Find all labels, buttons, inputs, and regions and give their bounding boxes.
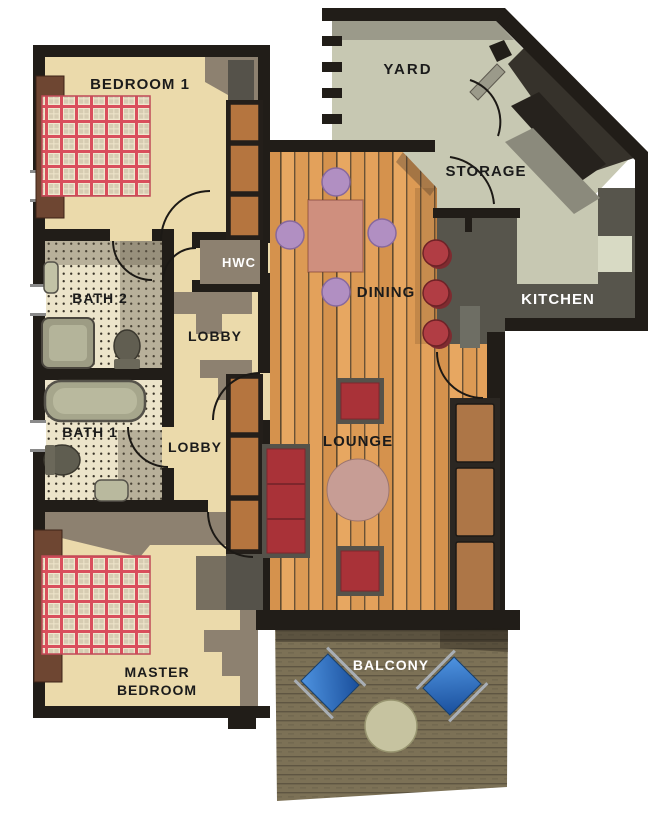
- lounge-armchair-bottom: [336, 546, 384, 596]
- label-lobby-lower: LOBBY: [168, 439, 222, 455]
- kitchen-counter-step: [460, 306, 480, 348]
- label-master-line1: MASTER: [124, 664, 189, 680]
- label-storage: STORAGE: [446, 163, 527, 180]
- label-kitchen: KITCHEN: [521, 291, 595, 308]
- lounge-sofa-red: [262, 444, 310, 558]
- dining-chair-left: [276, 221, 304, 249]
- lounge-sofa-brown: [450, 398, 500, 622]
- yard-wall-shadow: [332, 21, 514, 40]
- label-bath1: BATH 1: [62, 424, 118, 440]
- lounge-bottom-wall: [256, 610, 520, 630]
- left-block: [30, 45, 272, 729]
- kitchen-appliance: [598, 236, 632, 272]
- balcony: [256, 610, 520, 801]
- floor-plan-page: BEDROOM 1 YARD STORAGE HWC BATH 2 LOBBY …: [0, 0, 659, 830]
- label-bedroom1: BEDROOM 1: [90, 76, 190, 93]
- label-lounge: LOUNGE: [323, 433, 393, 450]
- label-master-line2: BEDROOM: [117, 682, 197, 698]
- deck-shadow-right: [440, 628, 508, 652]
- lobby-cabinets: [226, 374, 263, 610]
- bath2-shower-tray: [49, 325, 87, 361]
- balcony-table: [365, 700, 417, 752]
- bath2-toilet-tank: [114, 359, 140, 369]
- bedroom1-bed: [36, 76, 150, 218]
- bath1-tub-inner: [53, 388, 137, 414]
- lounge-armchair-top: [336, 378, 384, 424]
- floor-plan-drawing: BEDROOM 1 YARD STORAGE HWC BATH 2 LOBBY …: [0, 0, 659, 830]
- coffee-table: [327, 459, 389, 521]
- bath2-sink: [44, 262, 58, 293]
- bath1-toilet-tank: [45, 445, 55, 475]
- kitchen-inner-floor: [517, 196, 598, 284]
- label-yard: YARD: [383, 61, 432, 78]
- label-bath2: BATH 2: [72, 290, 128, 306]
- label-balcony: BALCONY: [353, 657, 429, 673]
- label-lobby-upper: LOBBY: [188, 328, 242, 344]
- dining-chair-right: [368, 219, 396, 247]
- label-dining: DINING: [357, 284, 416, 301]
- bath2-toilet: [114, 330, 140, 362]
- kitchen-stools: [423, 240, 452, 349]
- dining-chair-bottom: [322, 278, 350, 306]
- dining-chair-top: [322, 168, 350, 196]
- bath1-sink: [95, 480, 128, 501]
- label-hwc: HWC: [222, 255, 256, 270]
- dining-table: [308, 200, 363, 272]
